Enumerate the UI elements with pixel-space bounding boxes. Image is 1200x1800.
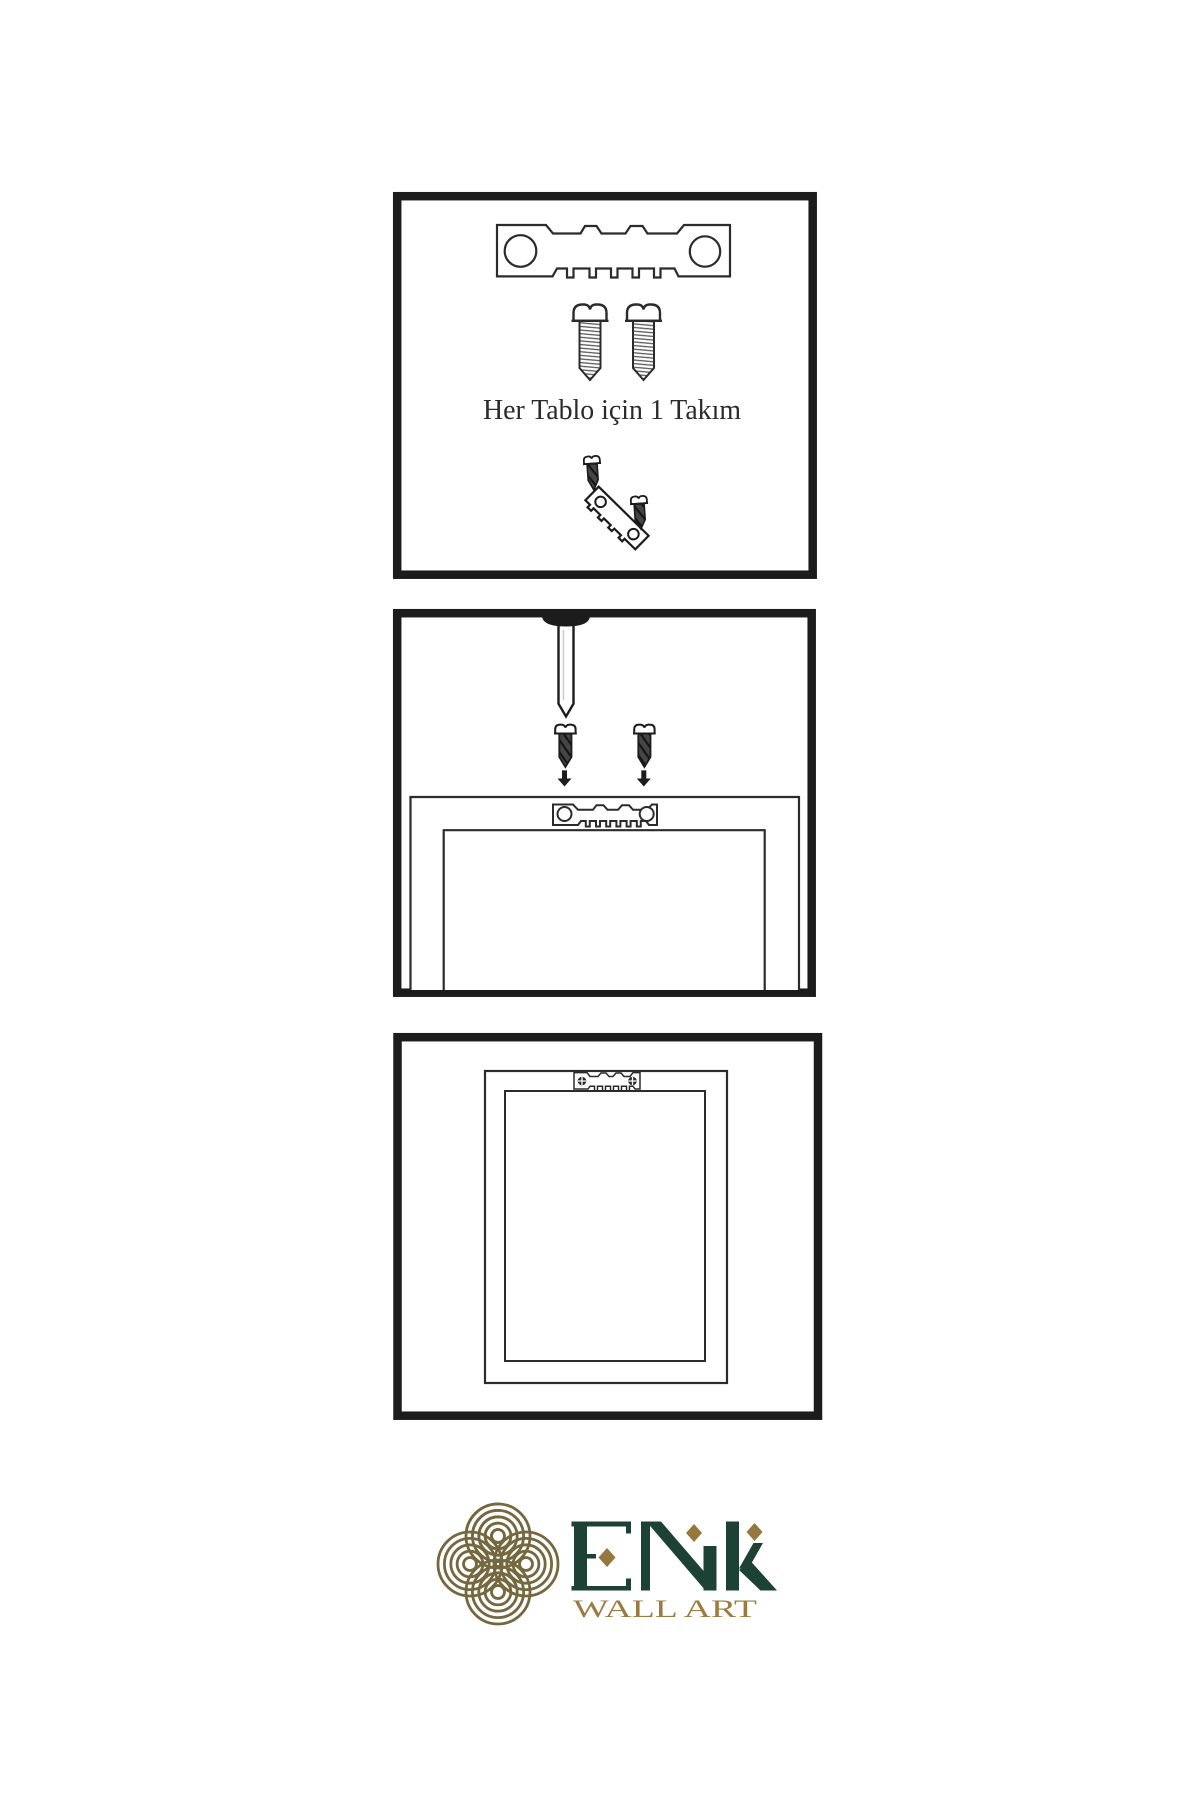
svg-text:Her Tablo için 1 Takım: Her Tablo için 1 Takım bbox=[483, 395, 741, 426]
svg-text:WALL ART: WALL ART bbox=[573, 1596, 757, 1623]
